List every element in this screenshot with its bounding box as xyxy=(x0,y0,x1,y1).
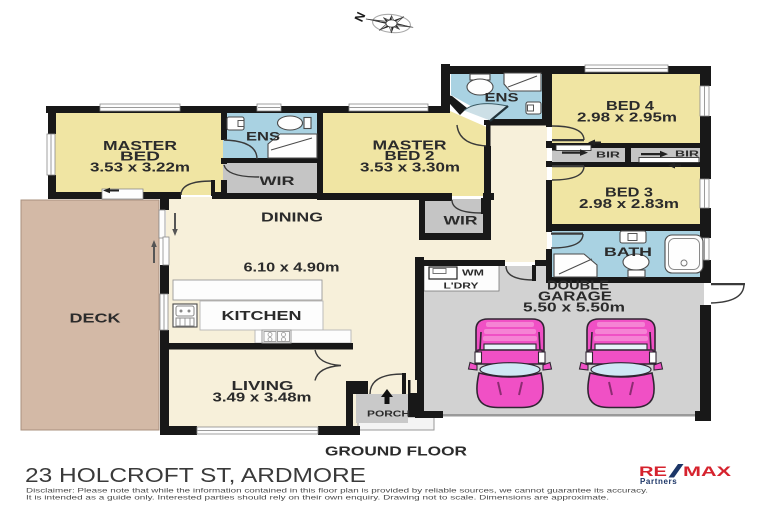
svg-text:WM: WM xyxy=(462,268,484,278)
svg-text:PORCH: PORCH xyxy=(367,409,410,419)
svg-text:ENS: ENS xyxy=(485,93,519,105)
svg-text:BIR: BIR xyxy=(675,149,699,159)
svg-text:6.10 x 4.90m: 6.10 x 4.90m xyxy=(244,261,340,275)
svg-text:DINING: DINING xyxy=(261,211,323,225)
svg-text:GROUND FLOOR: GROUND FLOOR xyxy=(325,444,468,459)
svg-text:Partners: Partners xyxy=(640,477,677,486)
svg-text:2.98 x 2.83m: 2.98 x 2.83m xyxy=(579,197,679,211)
svg-text:WIR: WIR xyxy=(260,176,296,188)
svg-text:3.49 x 3.48m: 3.49 x 3.48m xyxy=(213,391,312,405)
svg-text:It is intended as a guide only: It is intended as a guide only. Interest… xyxy=(26,495,609,502)
svg-text:BIR: BIR xyxy=(596,150,620,160)
svg-text:L'DRY: L'DRY xyxy=(444,281,479,291)
svg-text:DECK: DECK xyxy=(70,312,121,326)
svg-text:MAX: MAX xyxy=(683,463,732,479)
svg-text:5.50 x 5.50m: 5.50 x 5.50m xyxy=(523,301,625,315)
svg-text:BATH: BATH xyxy=(604,247,652,259)
svg-text:23 HOLCROFT ST, ARDMORE: 23 HOLCROFT ST, ARDMORE xyxy=(25,465,366,487)
svg-text:3.53 x 3.30m: 3.53 x 3.30m xyxy=(360,161,460,175)
svg-text:ENS: ENS xyxy=(246,132,280,144)
svg-text:Disclaimer: Please note that w: Disclaimer: Please note that while the i… xyxy=(26,488,648,495)
svg-text:KITCHEN: KITCHEN xyxy=(222,309,302,323)
svg-text:WIR: WIR xyxy=(444,216,479,228)
svg-text:2.98 x 2.95m: 2.98 x 2.95m xyxy=(577,111,677,125)
svg-text:3.53 x 3.22m: 3.53 x 3.22m xyxy=(90,161,190,175)
